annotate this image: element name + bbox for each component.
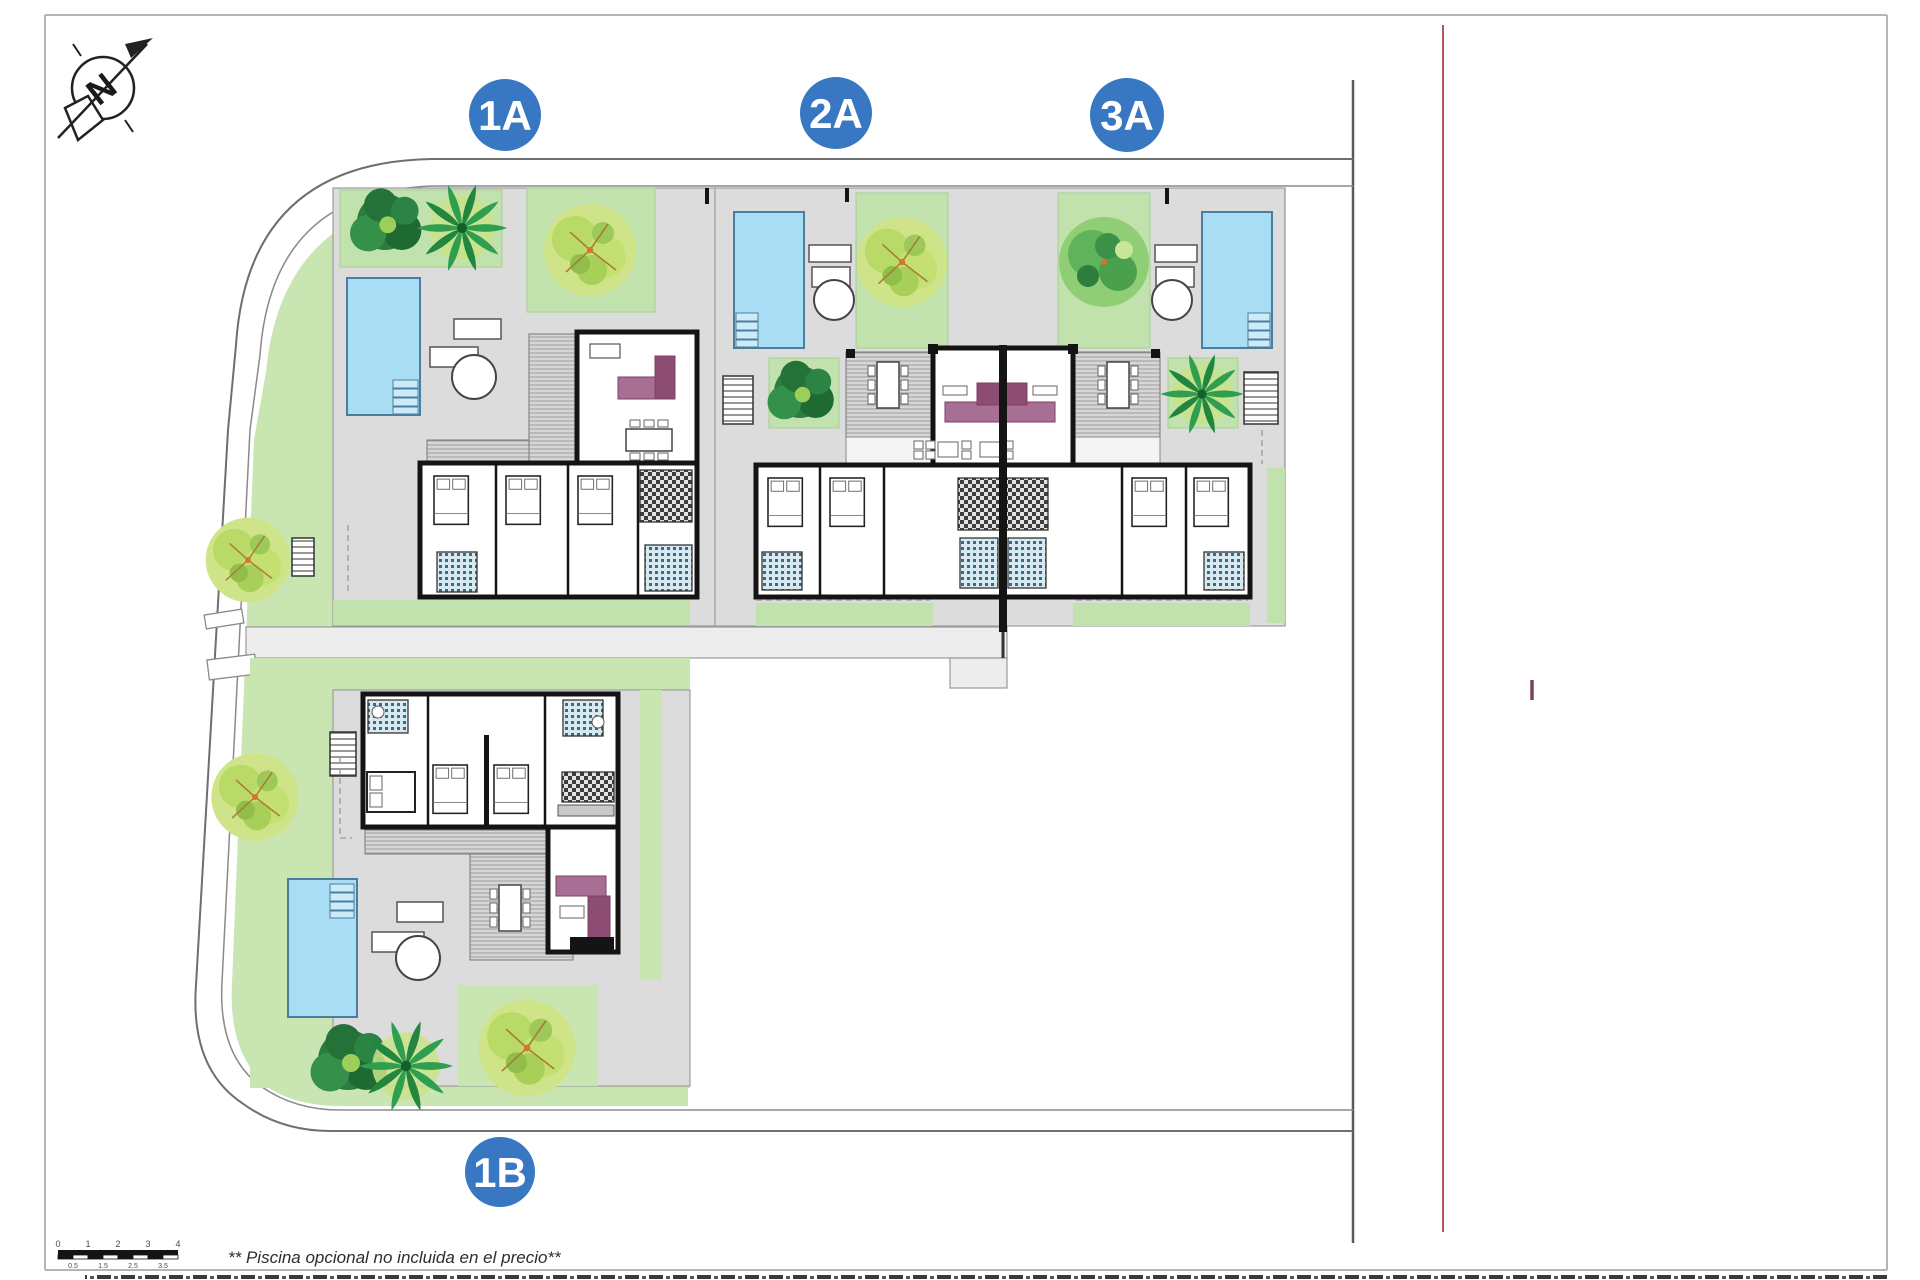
sofa <box>556 876 606 896</box>
unit-1b-label: 1B <box>473 1149 527 1196</box>
bathroom <box>1204 552 1244 590</box>
bathroom <box>437 552 477 592</box>
cutoff-text-strip <box>85 1274 1890 1280</box>
garden-strip <box>333 600 690 625</box>
entrance-stairs <box>292 538 314 576</box>
sun-lounger <box>397 902 443 922</box>
tree-icon <box>857 217 947 307</box>
unit-3a-label: 3A <box>1100 92 1154 139</box>
unit-3a-badge[interactable]: 3A <box>1090 78 1164 152</box>
pool-steps <box>1248 313 1270 347</box>
scale-major-1: 1 <box>85 1239 90 1249</box>
garden-strip <box>1073 603 1250 626</box>
entrance-stairs <box>723 376 753 424</box>
garden-strip <box>756 603 933 626</box>
round-table <box>814 280 854 320</box>
round-table <box>396 936 440 980</box>
sofa <box>655 356 675 399</box>
pool-steps <box>330 884 354 918</box>
tree-icon <box>544 204 636 296</box>
bathroom <box>762 552 802 590</box>
scale-minor-1: 1.5 <box>98 1263 108 1270</box>
bathroom <box>960 538 998 588</box>
scale-bar: 0 1 2 3 4 0.5 1.5 2.5 3.5 <box>55 1239 180 1270</box>
scale-minor-3: 3.5 <box>158 1263 168 1270</box>
party-wall <box>999 345 1007 632</box>
pool-steps <box>393 380 418 414</box>
unit-2a-badge[interactable]: 2A <box>800 77 872 149</box>
tree-icon <box>479 1000 576 1097</box>
kitchen <box>640 470 692 522</box>
tree-icon <box>1059 217 1149 307</box>
scale-major-4: 4 <box>175 1239 180 1249</box>
sun-lounger <box>809 245 851 262</box>
unit-2a-label: 2A <box>809 90 863 137</box>
pool-disclaimer-footnote: ** Piscina opcional no incluida en el pr… <box>228 1248 562 1267</box>
scale-major-2: 2 <box>115 1239 120 1249</box>
tree-icon <box>206 518 291 603</box>
kitchen <box>958 478 1000 530</box>
sun-lounger <box>1155 245 1197 262</box>
garden-strip <box>1267 468 1285 623</box>
bathroom <box>1008 538 1046 588</box>
tree-icon <box>211 753 298 840</box>
entrance-stairs <box>1244 372 1278 424</box>
scale-major-3: 3 <box>145 1239 150 1249</box>
site-plan-page: 1A 2A 3A 1B N 0 1 2 3 4 <box>0 0 1920 1280</box>
kitchen <box>562 772 614 802</box>
entrance-stairs <box>330 732 356 776</box>
site-plan-canvas: 1A 2A 3A 1B N 0 1 2 3 4 <box>0 0 1920 1280</box>
sun-lounger <box>454 319 501 339</box>
sofa <box>588 896 610 940</box>
north-compass-icon: N <box>58 38 153 140</box>
scale-major-0: 0 <box>55 1239 60 1249</box>
scale-minor-2: 2.5 <box>128 1263 138 1270</box>
unit-1a-label: 1A <box>478 92 532 139</box>
round-table <box>452 355 496 399</box>
pool-steps <box>736 313 758 347</box>
unit-1b-badge[interactable]: 1B <box>465 1137 535 1207</box>
bathroom <box>645 545 692 591</box>
kitchen <box>1006 478 1048 530</box>
round-table <box>1152 280 1192 320</box>
scale-minor-0: 0.5 <box>68 1263 78 1270</box>
unit-1a-badge[interactable]: 1A <box>469 79 541 151</box>
